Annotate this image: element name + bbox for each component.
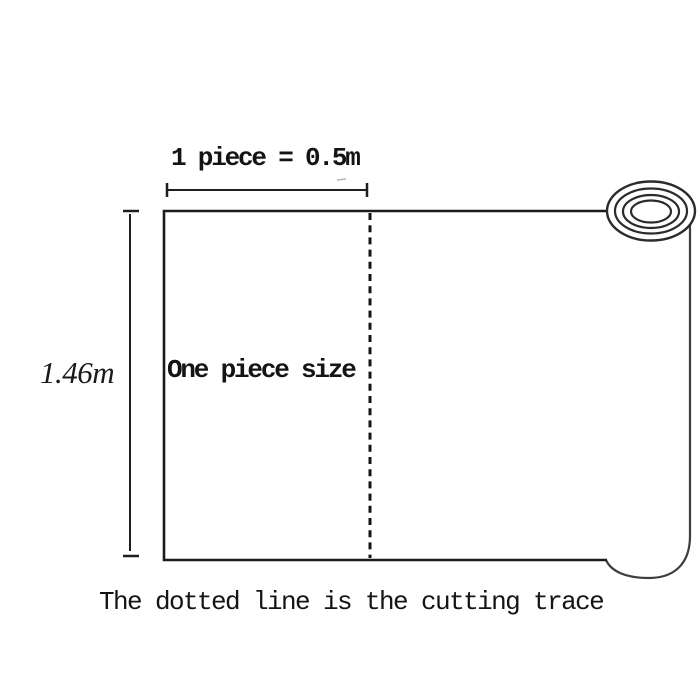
roll-ring-inner [631,201,671,223]
sheet-right-edge-curve [606,222,690,578]
width-dimension-label: 1 piece = 0.5m [171,145,359,171]
diagram-canvas: 1 piece = 0.5m 1.46m One piece size The … [0,0,700,700]
height-dimension-label: 1.46m [40,357,114,388]
sheet-outline [164,211,607,560]
sheet-right-edge [606,222,690,578]
caption-text: The dotted line is the cutting trace [99,589,603,615]
piece-size-label: One piece size [167,357,355,383]
stray-mark [337,179,346,180]
width-dimension [167,179,367,197]
roll-end-icon [607,182,695,241]
sheet-outline-path [164,211,607,560]
height-dimension [123,211,139,556]
